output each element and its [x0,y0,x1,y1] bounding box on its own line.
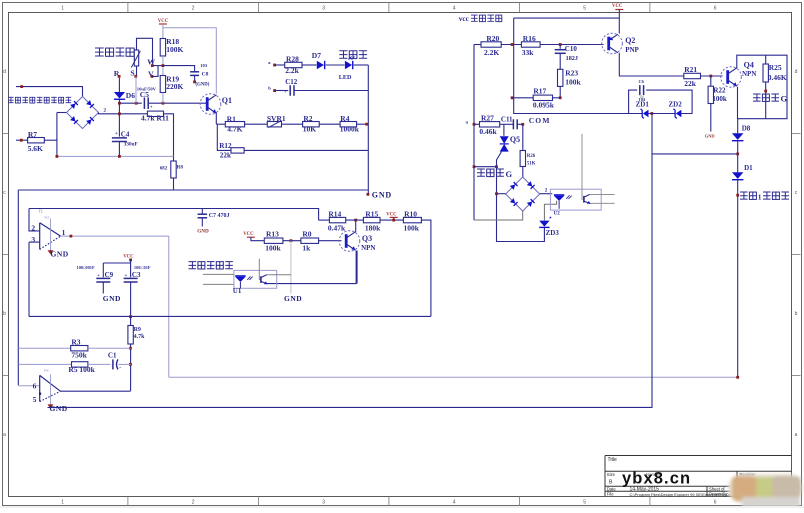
svg-text:6: 6 [714,6,717,12]
svg-text:G: G [506,169,513,179]
svg-text:Title: Title [608,457,617,463]
svg-text:Q5: Q5 [510,135,520,144]
svg-text:TL: TL [39,209,44,213]
svg-text:File: File [607,492,614,497]
svg-text:0.47k: 0.47k [328,223,346,232]
svg-text:104: 104 [639,97,646,102]
svg-text:Sheet of: Sheet of [709,486,725,491]
svg-text:R8: R8 [177,165,184,171]
svg-text:C1: C1 [108,352,117,360]
svg-text:1: 1 [61,6,64,12]
svg-text:a: a [795,432,798,438]
svg-text:Q4: Q4 [744,61,754,70]
svg-text:R1: R1 [227,114,236,123]
svg-text:+: + [97,274,100,279]
svg-text:100k: 100k [265,244,281,253]
svg-text:0.46K: 0.46K [768,73,787,82]
svg-text:R5 100k: R5 100k [68,365,95,374]
svg-text:R16: R16 [523,34,536,43]
svg-text:1: 1 [61,500,64,506]
svg-text:U2: U2 [554,212,561,217]
svg-text:2.2K: 2.2K [484,48,499,57]
svg-text:vcc: vcc [44,369,49,373]
svg-text:-: - [119,366,121,372]
svg-text:Q1: Q1 [222,96,232,105]
svg-text:R26: R26 [527,154,536,159]
svg-text:GND: GND [103,294,121,303]
svg-text:0.095k: 0.095k [533,101,555,110]
svg-text:4: 4 [453,6,456,12]
svg-text:COM: COM [529,116,551,125]
svg-text:+: + [115,131,118,137]
svg-text:5: 5 [583,500,586,506]
svg-text:Date: Date [607,486,617,491]
svg-text:VCC: VCC [123,255,134,260]
svg-text:182J: 182J [566,55,578,62]
svg-text:5: 5 [33,395,37,404]
svg-text:2: 2 [31,223,35,232]
svg-text:ybx8.cn: ybx8.cn [622,470,691,488]
svg-text:682: 682 [160,167,168,172]
svg-text:6: 6 [714,500,717,506]
svg-text:R27: R27 [481,114,494,123]
svg-text:4: 4 [453,500,456,506]
svg-text:R0: R0 [302,229,311,238]
svg-text:51K: 51K [527,161,536,166]
svg-text:a: a [3,432,6,438]
svg-text:SVR1: SVR1 [267,114,286,123]
svg-text:PNP: PNP [625,46,639,54]
svg-text:180k: 180k [365,223,381,232]
svg-text:33k: 33k [522,48,535,57]
svg-text:4.7k R11: 4.7k R11 [141,114,169,123]
svg-text:4.7k: 4.7k [134,334,146,340]
svg-text:6: 6 [33,382,37,391]
svg-text:3: 3 [322,500,325,506]
svg-text:5: 5 [583,6,586,12]
svg-text:D1: D1 [744,164,753,172]
svg-text:ZD3: ZD3 [546,229,560,237]
svg-text:GND: GND [197,229,209,235]
svg-text:100k: 100k [712,95,727,103]
svg-text:Q2: Q2 [625,36,635,45]
svg-text:1000k: 1000k [340,125,360,134]
svg-text:VCC: VCC [386,212,397,217]
svg-text:C8: C8 [202,72,209,78]
svg-text:22k: 22k [220,151,231,159]
svg-text:C7 470J: C7 470J [209,213,230,219]
svg-text:3: 3 [31,235,35,244]
svg-text:S: S [130,68,134,77]
svg-text:+: + [125,274,128,279]
svg-text:R4: R4 [340,114,349,123]
svg-text:ZD2: ZD2 [669,101,683,109]
svg-text:VCC: VCC [158,19,169,24]
svg-text:R17: R17 [533,87,546,96]
svg-text:R9: R9 [134,327,141,333]
svg-text:R15: R15 [365,210,378,219]
svg-text:22k: 22k [684,79,697,88]
svg-text:C12: C12 [285,78,298,86]
svg-text:D8: D8 [742,125,751,133]
svg-text:R21: R21 [684,65,697,74]
svg-text:R22: R22 [713,87,726,95]
svg-text:R7: R7 [28,130,37,139]
svg-text:100k: 100k [565,77,581,86]
svg-text:vcc: vcc [459,15,470,23]
svg-text:VCC: VCC [612,4,623,9]
svg-text:R28: R28 [286,55,299,64]
svg-text:10K: 10K [303,125,317,134]
svg-text:103: 103 [200,63,208,68]
svg-text:b: b [3,311,6,317]
svg-text:C10: C10 [565,45,578,53]
svg-text:GND: GND [372,191,392,200]
svg-text:D6: D6 [126,91,135,100]
svg-text:R12: R12 [219,142,232,150]
svg-text:100K: 100K [166,45,183,54]
svg-text:vcc: vcc [44,216,49,220]
svg-text:VCC: VCC [243,232,254,237]
svg-text:10uF/50V: 10uF/50V [137,86,157,91]
svg-text:C11: C11 [501,116,513,124]
svg-text:4.7K: 4.7K [227,125,242,134]
svg-text:Size: Size [607,472,616,477]
svg-text:R13: R13 [266,229,279,238]
svg-text:R14: R14 [328,210,341,219]
svg-text:NPN: NPN [742,70,756,78]
svg-text:b: b [795,311,798,317]
svg-text:GND: GND [284,294,302,303]
svg-text:GND: GND [51,250,69,259]
svg-text:2: 2 [192,6,195,12]
svg-text:D7: D7 [312,51,321,60]
svg-text:d: d [3,69,6,75]
svg-text:1: 1 [758,193,762,202]
svg-text:750k: 750k [71,350,87,359]
svg-text:R10: R10 [404,210,417,219]
svg-text:B: B [609,480,613,486]
svg-text:3: 3 [322,6,325,12]
svg-text:(GND): (GND) [196,83,210,88]
svg-text:Drawn By:: Drawn By: [709,492,728,497]
svg-text:5.6K: 5.6K [28,144,43,153]
svg-text:U1: U1 [233,287,242,295]
svg-text:NPN: NPN [361,244,375,252]
svg-text:100k: 100k [404,223,420,232]
svg-text:100/.001F: 100/.001F [77,265,95,270]
svg-text:R20: R20 [486,34,499,43]
svg-text:R2: R2 [303,114,312,123]
svg-text:LED: LED [339,74,352,81]
svg-text:GND: GND [705,134,715,139]
svg-text:C3: C3 [132,271,141,279]
svg-text:G: G [781,94,788,104]
svg-text:Q3: Q3 [362,234,372,243]
svg-text:220K: 220K [166,82,183,91]
svg-text:R25: R25 [769,63,782,72]
svg-text:C6: C6 [639,79,645,84]
svg-text:1k: 1k [302,244,311,253]
svg-text:R3: R3 [71,337,80,346]
svg-text:1: 1 [62,228,66,237]
svg-text:2.2k: 2.2k [285,66,299,75]
svg-text:C9: C9 [105,271,114,279]
svg-text:R23: R23 [565,69,578,78]
svg-text:10E/.01F: 10E/.01F [134,265,151,270]
svg-text:330uF: 330uF [124,142,138,148]
svg-text:GND: GND [50,404,68,413]
svg-text:d: d [795,69,798,75]
svg-text:2: 2 [192,500,195,506]
svg-text:C4: C4 [121,131,130,139]
svg-text:+: + [284,89,287,94]
svg-text:+: + [150,106,153,111]
svg-text:0.46k: 0.46k [479,127,497,136]
